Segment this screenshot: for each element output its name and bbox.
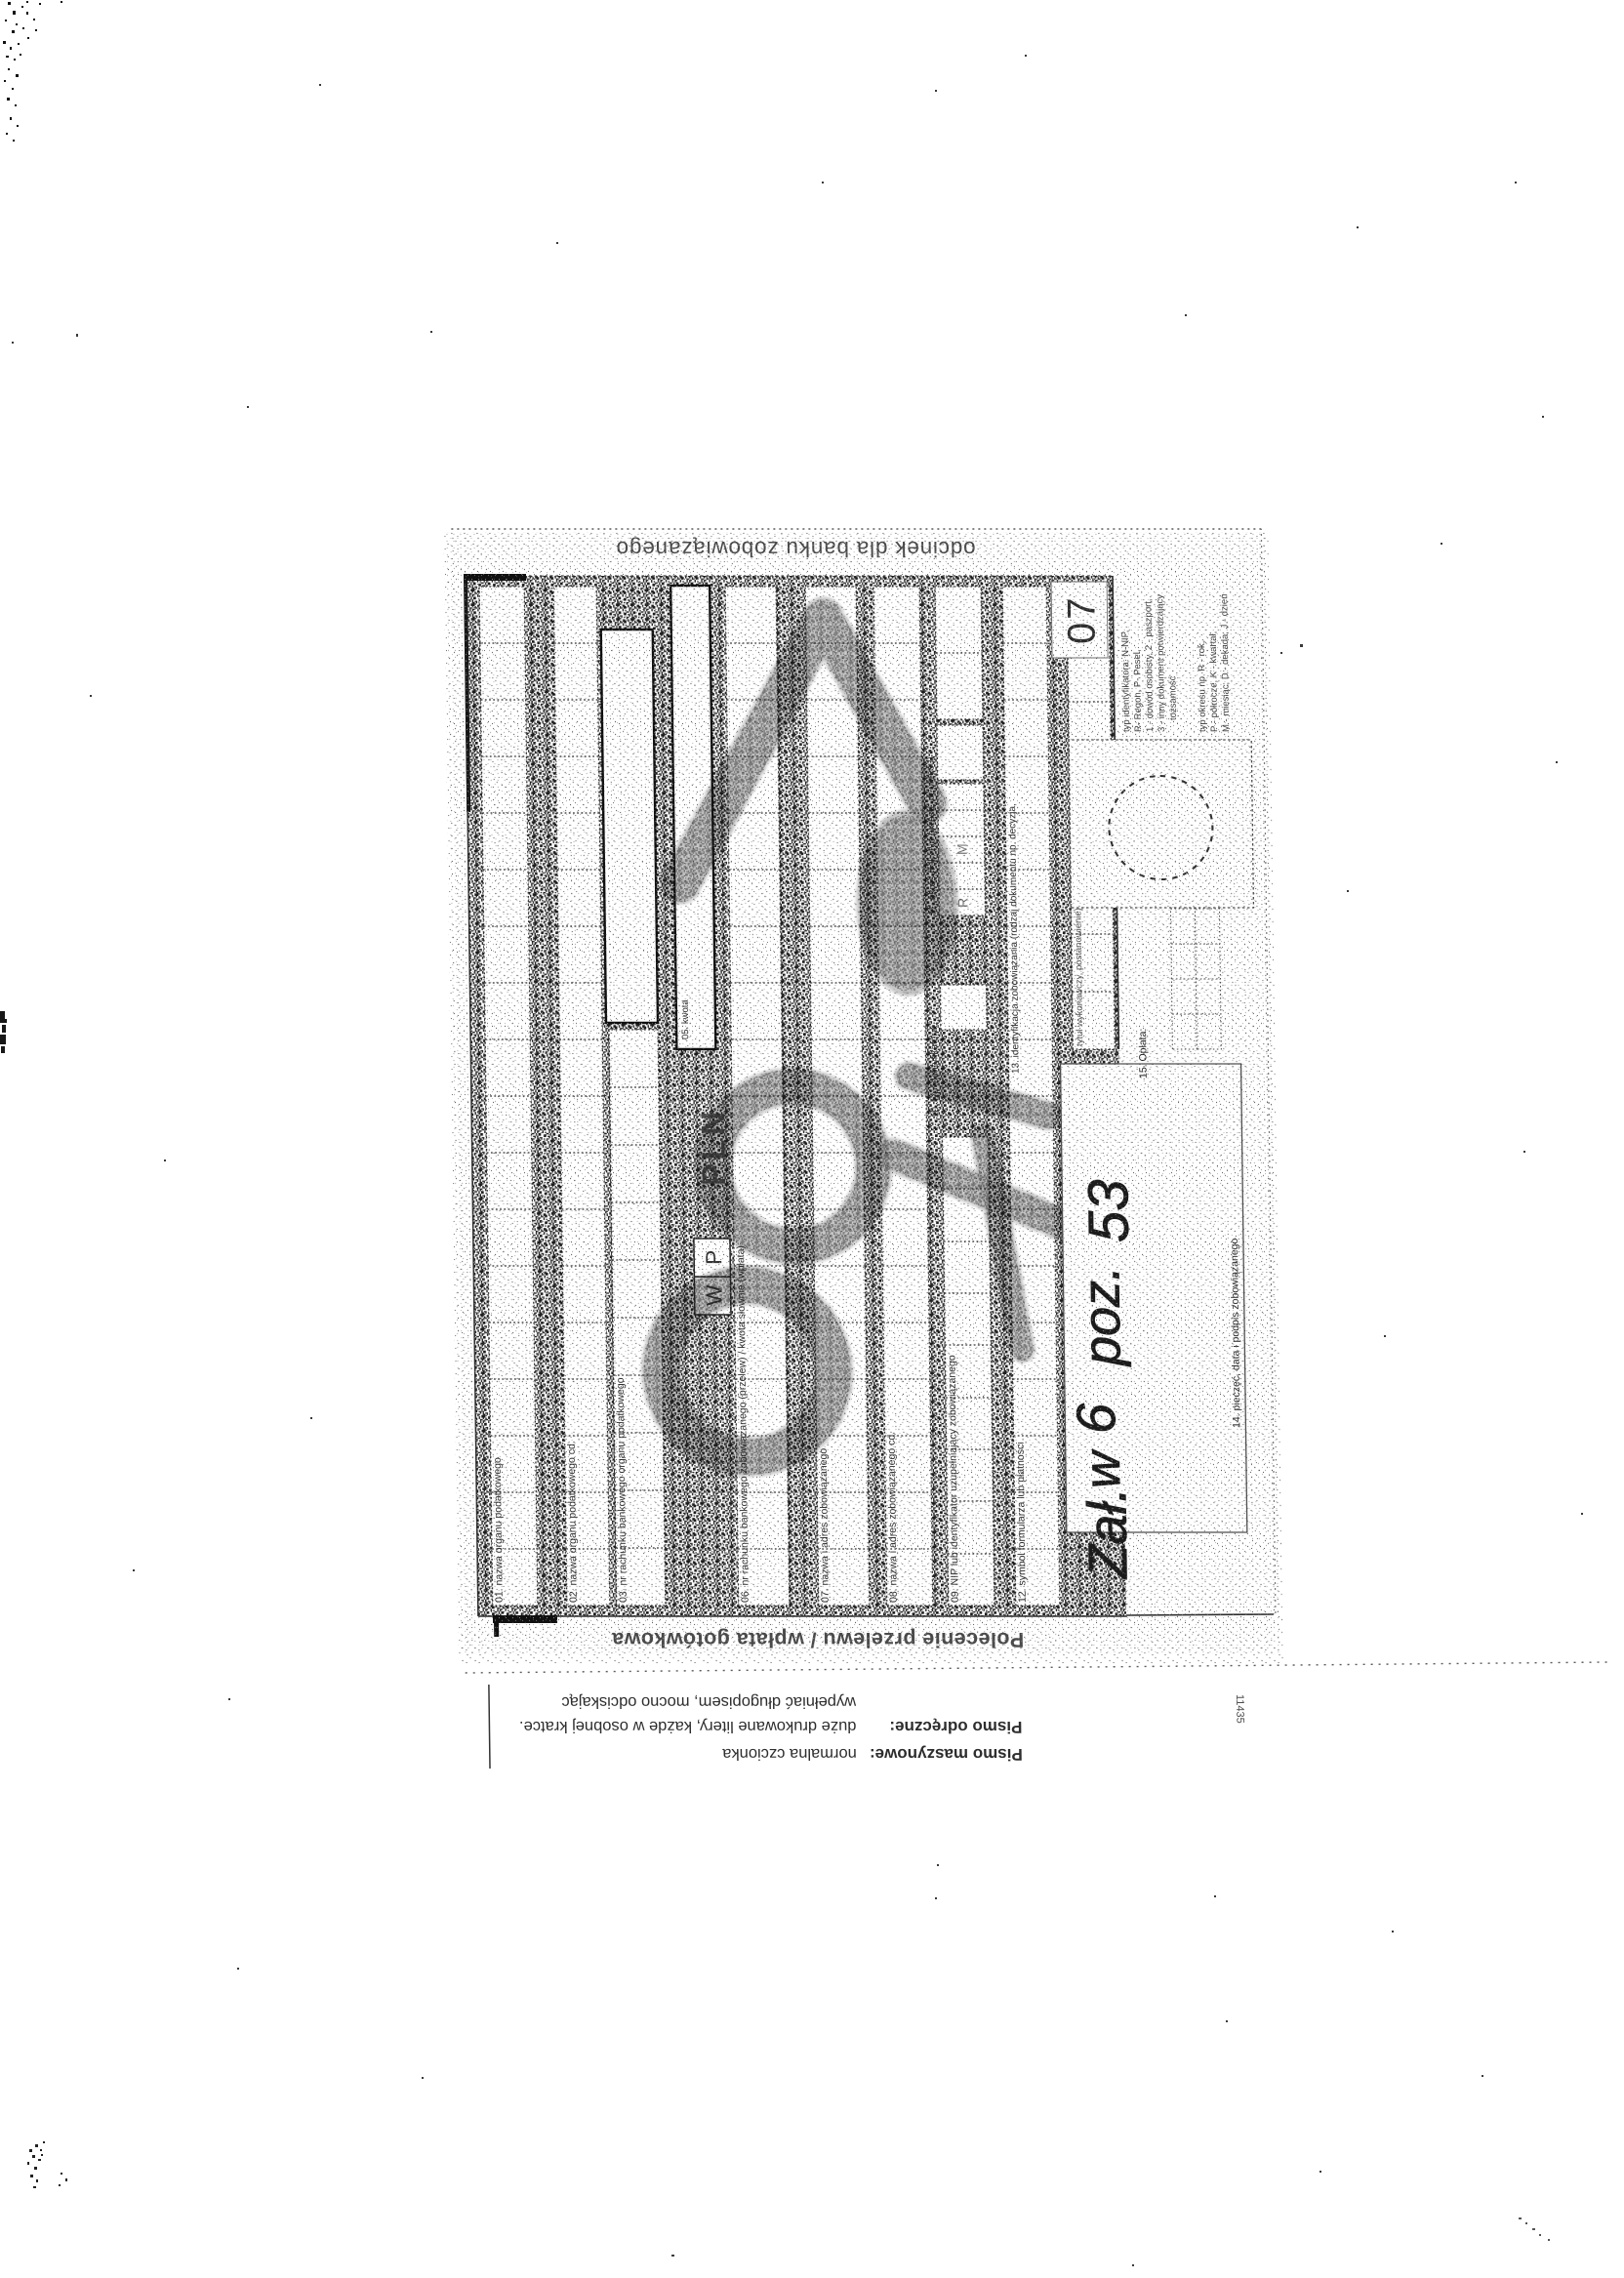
- svg-text:normalna czcionka: normalna czcionka: [721, 1745, 857, 1763]
- svg-text:Pismo odręczne:: Pismo odręczne:: [889, 1718, 1022, 1736]
- svg-text:11435: 11435: [1234, 1694, 1245, 1724]
- svg-text:Pismo maszynowe:: Pismo maszynowe:: [870, 1745, 1023, 1764]
- svg-text:wypełniać długopisem, mocno od: wypełniać długopisem, mocno odciskając: [561, 1693, 857, 1711]
- svg-text:duże drukowane litery, każde w: duże drukowane litery, każde w osobnej k…: [519, 1718, 857, 1735]
